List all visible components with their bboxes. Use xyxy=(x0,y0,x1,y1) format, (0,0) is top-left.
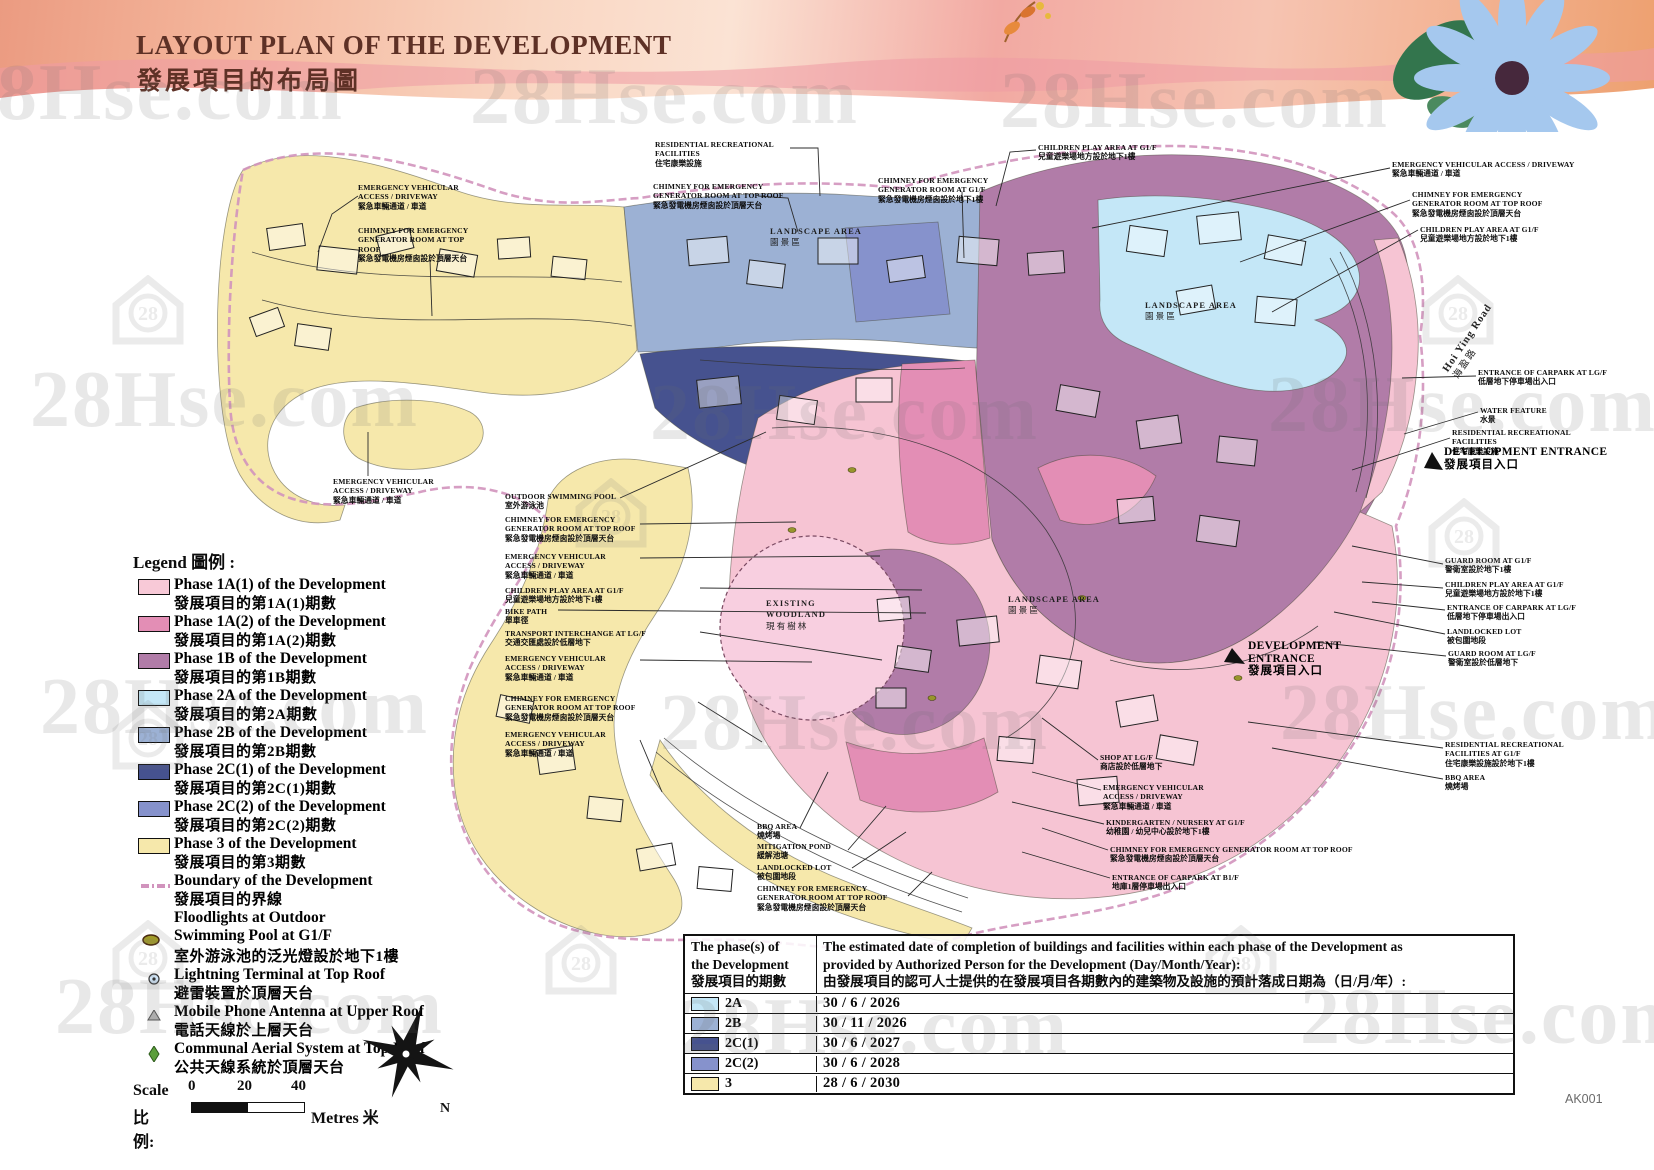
callout-bbq-area: BBQ AREA燒烤場 xyxy=(757,822,857,841)
callout-mitigation-pond: MITIGATION POND緩解池塘 xyxy=(757,842,877,861)
callout-children-play-area: CHILDREN PLAY AREA AT G1/F兒童遊樂場地方設於地下1樓 xyxy=(1038,143,1208,162)
callout-emergency-vehicular-access: EMERGENCY VEHICULAR ACCESS / DRIVEWAY緊急車… xyxy=(505,654,625,682)
communal-aerial-icon xyxy=(148,1046,160,1062)
compass-rose-icon: N xyxy=(348,1002,468,1122)
phase-2c1-swatch xyxy=(691,1037,719,1051)
development-entrance-label: DEVELOPMENT ENTRANCE發展項目入口 xyxy=(1248,640,1368,678)
callout-emergency-vehicular-access: EMERGENCY VEHICULAR ACCESS / DRIVEWAY緊急車… xyxy=(1103,783,1223,811)
callout-emergency-vehicular-access: EMERGENCY VEHICULAR ACCESS / DRIVEWAY緊急車… xyxy=(1392,160,1622,179)
phase-2b-swatch xyxy=(691,1017,719,1031)
callout-guard-room-g1f: GUARD ROOM AT G1/F警衛室設於地下1樓 xyxy=(1445,556,1595,575)
callout-residential-recreational: RESIDENTIAL RECREATIONAL FACILITIES住宅康樂設… xyxy=(655,140,785,168)
callout-children-play-area: CHILDREN PLAY AREA AT G1/F兒童遊樂場地方設於地下1樓 xyxy=(505,586,675,605)
table-row: 2B 30 / 11 / 2026 xyxy=(685,1013,1513,1033)
drawing-code: AK001 xyxy=(1565,1092,1603,1106)
callout-chimney-top-roof: CHIMNEY FOR EMERGENCY GENERATOR ROOM AT … xyxy=(1412,190,1572,218)
callout-bike-path: BIKE PATH單車徑 xyxy=(505,607,595,626)
phase-2c2-swatch xyxy=(691,1057,719,1071)
entrance-arrow-icon xyxy=(1424,452,1443,470)
phase-3-swatch xyxy=(691,1077,719,1091)
callout-children-play-area: CHILDREN PLAY AREA AT G1/F兒童遊樂場地方設於地下1樓 xyxy=(1445,580,1615,599)
scale-bar-graphic xyxy=(191,1102,305,1113)
layout-plan-page: LAYOUT PLAN OF THE DEVELOPMENT 發展項目的布局圖 xyxy=(0,0,1654,1170)
table-row: 3 28 / 6 / 2030 xyxy=(685,1073,1513,1093)
phase-3-swatch xyxy=(138,838,170,854)
callout-landlocked-lot: LANDLOCKED LOT被包圍地段 xyxy=(1447,627,1577,646)
callout-chimney-top-roof: CHIMNEY FOR EMERGENCY GENERATOR ROOM AT … xyxy=(1110,845,1410,864)
floodlight-icon xyxy=(141,933,161,947)
callout-chimney-top-roof: CHIMNEY FOR EMERGENCY GENERATOR ROOM AT … xyxy=(505,694,655,722)
landscape-area-label: LANDSCAPE AREA園景區 xyxy=(1008,594,1100,617)
page-title: LAYOUT PLAN OF THE DEVELOPMENT xyxy=(136,30,672,61)
callout-kindergarten-nursery: KINDERGARTEN / NURSERY AT G1/F幼稚園 / 幼兒中心… xyxy=(1106,818,1326,837)
development-entrance-label: DEVELOPMENT ENTRANCE發展項目入口 xyxy=(1444,446,1607,471)
legend: Legend 圖例 : xyxy=(133,548,235,579)
lightning-terminal-icon xyxy=(147,972,161,986)
completion-date-table: The phase(s) of the Development 發展項目的期數 … xyxy=(683,934,1515,1095)
callout-carpark-entrance-lgf: ENTRANCE OF CARPARK AT LG/F低層地下停車場出入口 xyxy=(1447,603,1627,622)
callout-residential-recreational-g1f: RESIDENTIAL RECREATIONAL FACILITIES AT G… xyxy=(1445,740,1605,768)
callout-carpark-entrance-lgf: ENTRANCE OF CARPARK AT LG/F低層地下停車場出入口 xyxy=(1478,368,1608,387)
boundary-dash-icon xyxy=(141,880,173,892)
table-row: 2C(2) 30 / 6 / 2028 xyxy=(685,1053,1513,1073)
page-title-zh: 發展項目的布局圖 xyxy=(137,61,361,97)
callout-landlocked-lot: LANDLOCKED LOT被包圍地段 xyxy=(757,863,887,882)
callout-emergency-vehicular-access: EMERGENCY VEHICULAR ACCESS / DRIVEWAY緊急車… xyxy=(505,552,625,580)
callout-children-play-area: CHILDREN PLAY AREA AT G1/F兒童遊樂場地方設於地下1樓 xyxy=(1420,225,1600,244)
callout-water-feature: WATER FEATURE水景 xyxy=(1480,406,1590,425)
phase-2c2-swatch xyxy=(138,801,170,817)
landscape-area-label: LANDSCAPE AREA園景區 xyxy=(1145,300,1237,323)
table-row: 2C(1) 30 / 6 / 2027 xyxy=(685,1033,1513,1053)
phase-2a-swatch xyxy=(138,690,170,706)
callout-chimney-g1f: CHIMNEY FOR EMERGENCY GENERATOR ROOM AT … xyxy=(878,176,1028,204)
callout-carpark-entrance-b1f: ENTRANCE OF CARPARK AT B1/F地庫1層停車場出入口 xyxy=(1112,873,1312,892)
phase-1a1-swatch xyxy=(138,579,170,595)
existing-woodland-label: EXISTING WOODLAND 現有樹林 xyxy=(766,598,826,632)
callout-chimney-top-roof: CHIMNEY FOR EMERGENCY GENERATOR ROOM AT … xyxy=(358,226,488,263)
callout-shop-lgf: SHOP AT LG/F商店設於低層地下 xyxy=(1100,753,1230,772)
callout-emergency-vehicular-access: EMERGENCY VEHICULAR ACCESS / DRIVEWAY緊急車… xyxy=(333,477,448,505)
landscape-area-label: LANDSCAPE AREA園景區 xyxy=(770,226,862,249)
callout-emergency-vehicular-access: EMERGENCY VEHICULAR ACCESS / DRIVEWAY緊急車… xyxy=(358,183,478,211)
phase-1a2-swatch xyxy=(138,616,170,632)
table-header-row: The phase(s) of the Development 發展項目的期數 … xyxy=(685,936,1513,993)
mobile-antenna-icon xyxy=(147,1010,161,1022)
callout-emergency-vehicular-access: EMERGENCY VEHICULAR ACCESS / DRIVEWAY緊急車… xyxy=(505,730,625,758)
phase-2c1-swatch xyxy=(138,764,170,780)
callout-guard-room-lgf: GUARD ROOM AT LG/F警衛室設於低層地下 xyxy=(1448,649,1598,668)
callout-bbq-area: BBQ AREA燒烤場 xyxy=(1445,773,1545,792)
phase-1b-swatch xyxy=(138,653,170,669)
legend-heading: Legend 圖例 : xyxy=(133,548,235,573)
callout-chimney-top-roof: CHIMNEY FOR EMERGENCY GENERATOR ROOM AT … xyxy=(653,182,803,210)
callout-outdoor-swimming-pool: OUTDOOR SWIMMING POOL室外游泳池 xyxy=(505,492,655,511)
callout-chimney-top-roof: CHIMNEY FOR EMERGENCY GENERATOR ROOM AT … xyxy=(757,884,917,912)
north-label: N xyxy=(440,1101,450,1116)
callout-transport-interchange: TRANSPORT INTERCHANGE AT LG/F交通交匯處設於低層地下 xyxy=(505,629,705,648)
callout-chimney-top-roof: CHIMNEY FOR EMERGENCY GENERATOR ROOM AT … xyxy=(505,515,655,543)
table-row: 2A 30 / 6 / 2026 xyxy=(685,993,1513,1013)
phase-2a-swatch xyxy=(691,997,719,1011)
phase-2b-swatch xyxy=(138,727,170,743)
